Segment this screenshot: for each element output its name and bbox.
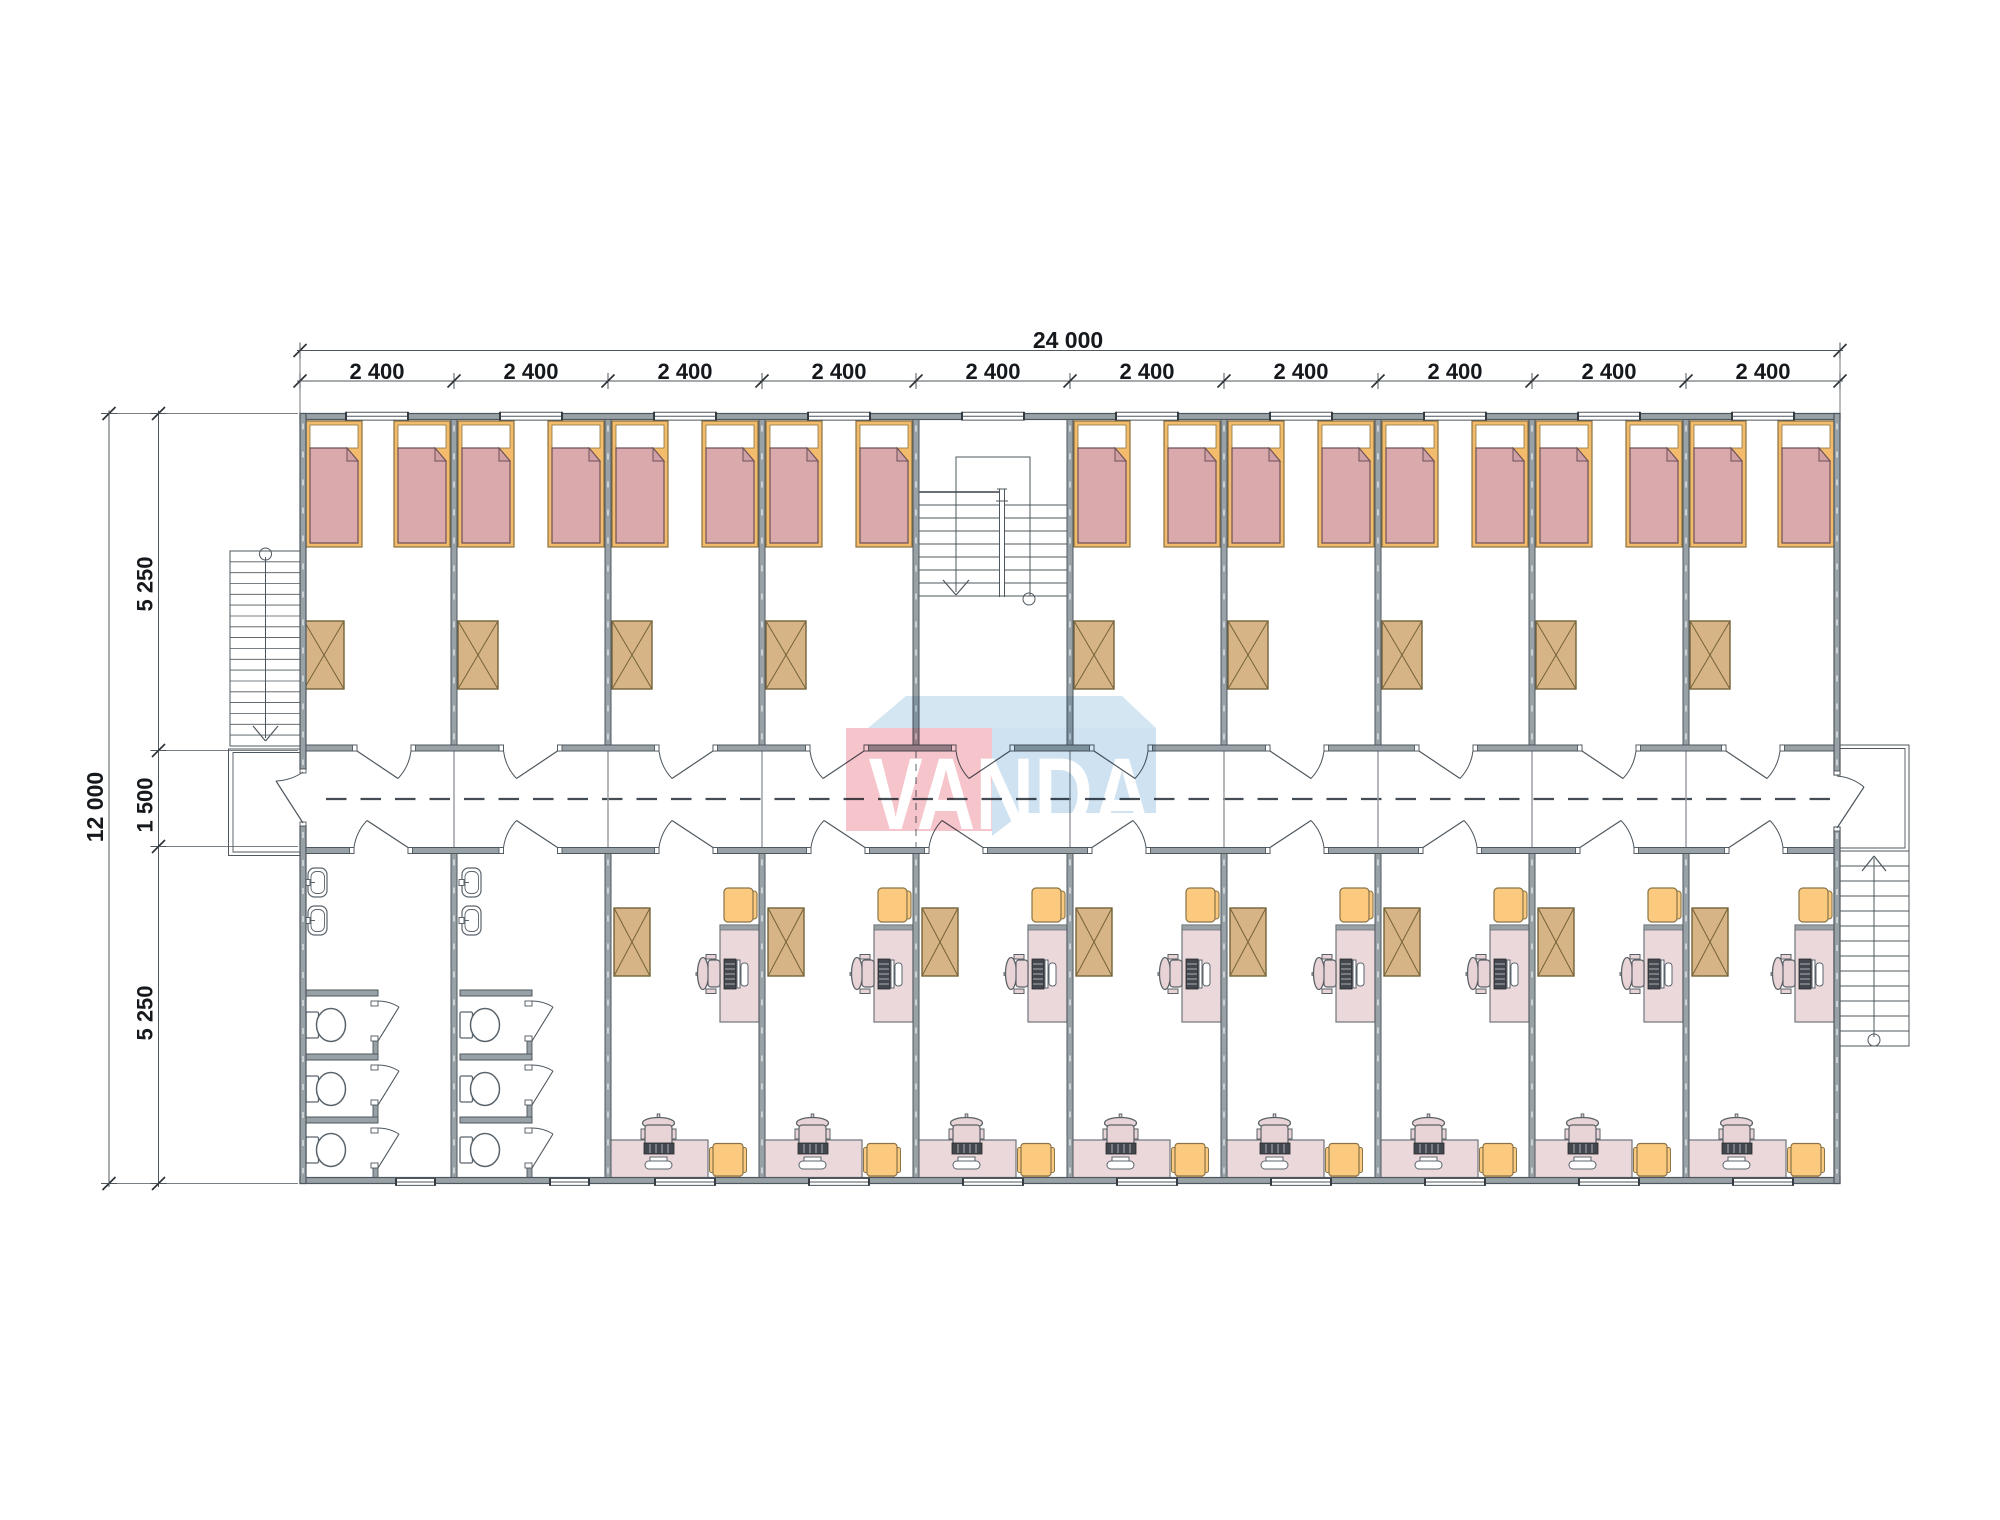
svg-text:2 400: 2 400 [811, 359, 866, 384]
svg-text:2 400: 2 400 [503, 359, 558, 384]
svg-text:2 400: 2 400 [1119, 359, 1174, 384]
svg-text:2 400: 2 400 [349, 359, 404, 384]
svg-text:2 400: 2 400 [1427, 359, 1482, 384]
svg-text:2 400: 2 400 [1735, 359, 1790, 384]
svg-text:2 400: 2 400 [1273, 359, 1328, 384]
svg-text:24 000: 24 000 [1033, 327, 1103, 353]
svg-text:1 500: 1 500 [133, 777, 158, 832]
svg-text:2 400: 2 400 [657, 359, 712, 384]
svg-text:5 250: 5 250 [133, 556, 158, 611]
svg-text:5 250: 5 250 [133, 985, 158, 1040]
svg-text:2 400: 2 400 [1581, 359, 1636, 384]
svg-text:12 000: 12 000 [82, 772, 108, 842]
svg-text:2 400: 2 400 [965, 359, 1020, 384]
